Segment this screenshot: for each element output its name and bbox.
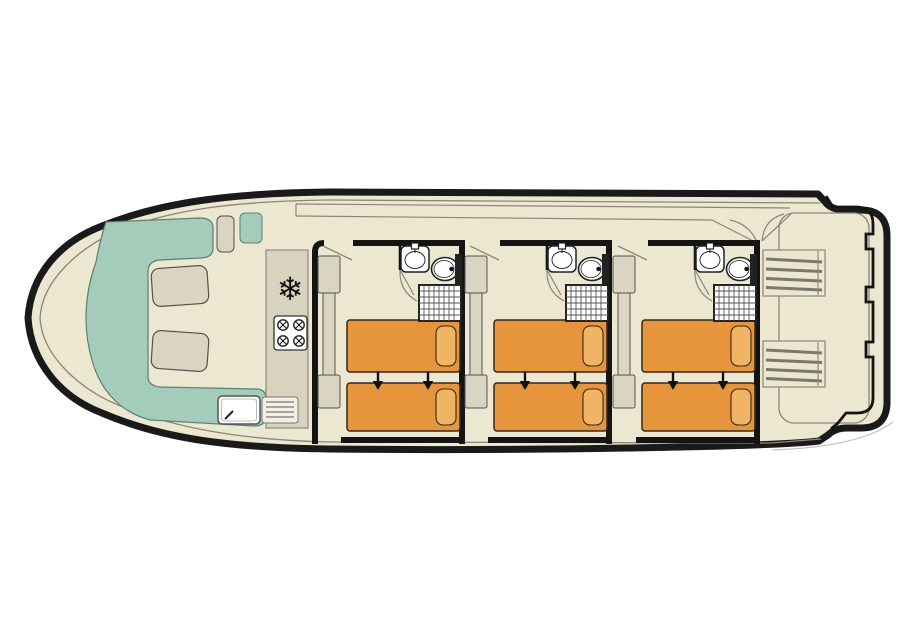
boat-floor-plan: ❄ bbox=[0, 0, 900, 640]
lounge-cushion bbox=[151, 265, 210, 307]
lounge-cushion bbox=[151, 330, 210, 372]
bow-step bbox=[217, 216, 234, 252]
stove-four-burner-icon bbox=[274, 316, 307, 350]
stairs-top bbox=[763, 250, 825, 296]
bow-step-teal bbox=[240, 213, 262, 243]
drainboard-icon bbox=[262, 397, 298, 423]
sink-drainer-icon bbox=[218, 396, 298, 424]
freezer-snowflake-icon: ❄ bbox=[277, 270, 304, 308]
stairs-bottom bbox=[763, 341, 825, 387]
deck-plan-page: ❄ bbox=[0, 0, 900, 640]
